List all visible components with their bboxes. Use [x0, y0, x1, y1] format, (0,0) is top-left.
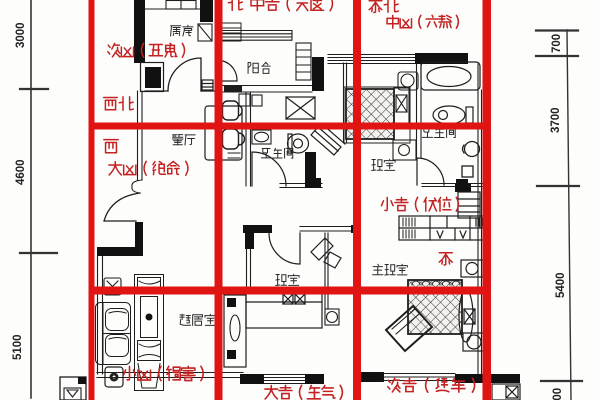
svg-text:5100: 5100 [12, 334, 24, 360]
svg-text:600: 600 [552, 388, 564, 400]
svg-text:4600: 4600 [15, 159, 27, 185]
svg-text:5400: 5400 [555, 272, 567, 298]
svg-text:3700: 3700 [550, 107, 562, 133]
svg-text:700: 700 [551, 34, 563, 53]
svg-text:3000: 3000 [15, 22, 27, 48]
